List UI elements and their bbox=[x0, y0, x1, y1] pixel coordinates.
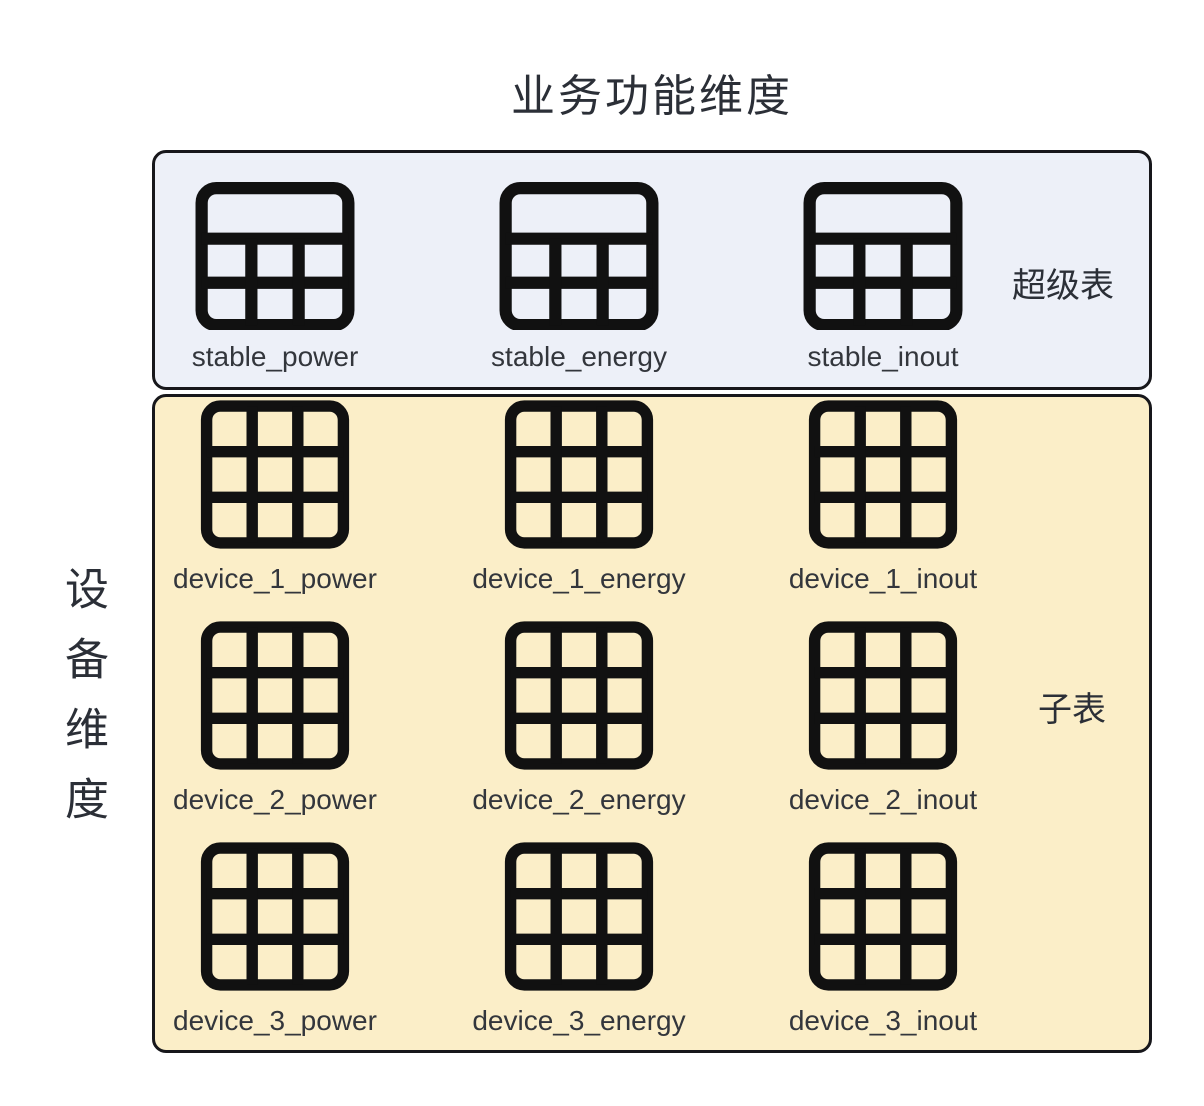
super-table-icon bbox=[497, 180, 661, 330]
diagram-canvas: 业务功能维度 设备维度 超级表 子表 stable_power stable_e… bbox=[0, 0, 1204, 1106]
sub-table-annotation: 子表 bbox=[1038, 682, 1106, 731]
table-label: device_2_power bbox=[173, 784, 377, 816]
sub-table-icon bbox=[807, 618, 959, 773]
table-label: device_1_inout bbox=[789, 563, 977, 595]
device-dimension-title: 设备维度 bbox=[50, 566, 114, 846]
super-table-annotation: 超级表 bbox=[1012, 258, 1114, 307]
table-label: device_1_energy bbox=[472, 563, 685, 595]
table-label: stable_power bbox=[192, 341, 359, 373]
table-label: device_1_power bbox=[173, 563, 377, 595]
sub-table-device-1-energy: device_1_energy bbox=[457, 397, 701, 595]
table-label: device_3_energy bbox=[472, 1005, 685, 1037]
super-table-stable-energy: stable_energy bbox=[457, 180, 701, 373]
table-label: device_2_inout bbox=[789, 784, 977, 816]
sub-table-icon bbox=[199, 397, 351, 552]
sub-table-device-1-power: device_1_power bbox=[153, 397, 397, 595]
sub-table-icon bbox=[199, 839, 351, 994]
sub-table-icon bbox=[503, 618, 655, 773]
sub-table-device-2-energy: device_2_energy bbox=[457, 618, 701, 816]
sub-table-device-3-power: device_3_power bbox=[153, 839, 397, 1037]
sub-table-device-2-power: device_2_power bbox=[153, 618, 397, 816]
table-label: device_3_inout bbox=[789, 1005, 977, 1037]
sub-table-device-1-inout: device_1_inout bbox=[761, 397, 1005, 595]
sub-table-icon bbox=[503, 839, 655, 994]
table-label: stable_inout bbox=[807, 341, 958, 373]
sub-table-icon bbox=[199, 618, 351, 773]
table-label: device_2_energy bbox=[472, 784, 685, 816]
sub-table-icon bbox=[807, 839, 959, 994]
sub-table-icon bbox=[503, 397, 655, 552]
super-table-icon bbox=[801, 180, 965, 330]
super-table-stable-power: stable_power bbox=[153, 180, 397, 373]
super-table-icon bbox=[193, 180, 357, 330]
sub-table-device-3-inout: device_3_inout bbox=[761, 839, 1005, 1037]
table-label: stable_energy bbox=[491, 341, 667, 373]
business-dimension-title: 业务功能维度 bbox=[152, 60, 1152, 124]
sub-table-device-2-inout: device_2_inout bbox=[761, 618, 1005, 816]
sub-table-icon bbox=[807, 397, 959, 552]
sub-table-device-3-energy: device_3_energy bbox=[457, 839, 701, 1037]
super-table-stable-inout: stable_inout bbox=[761, 180, 1005, 373]
table-label: device_3_power bbox=[173, 1005, 377, 1037]
